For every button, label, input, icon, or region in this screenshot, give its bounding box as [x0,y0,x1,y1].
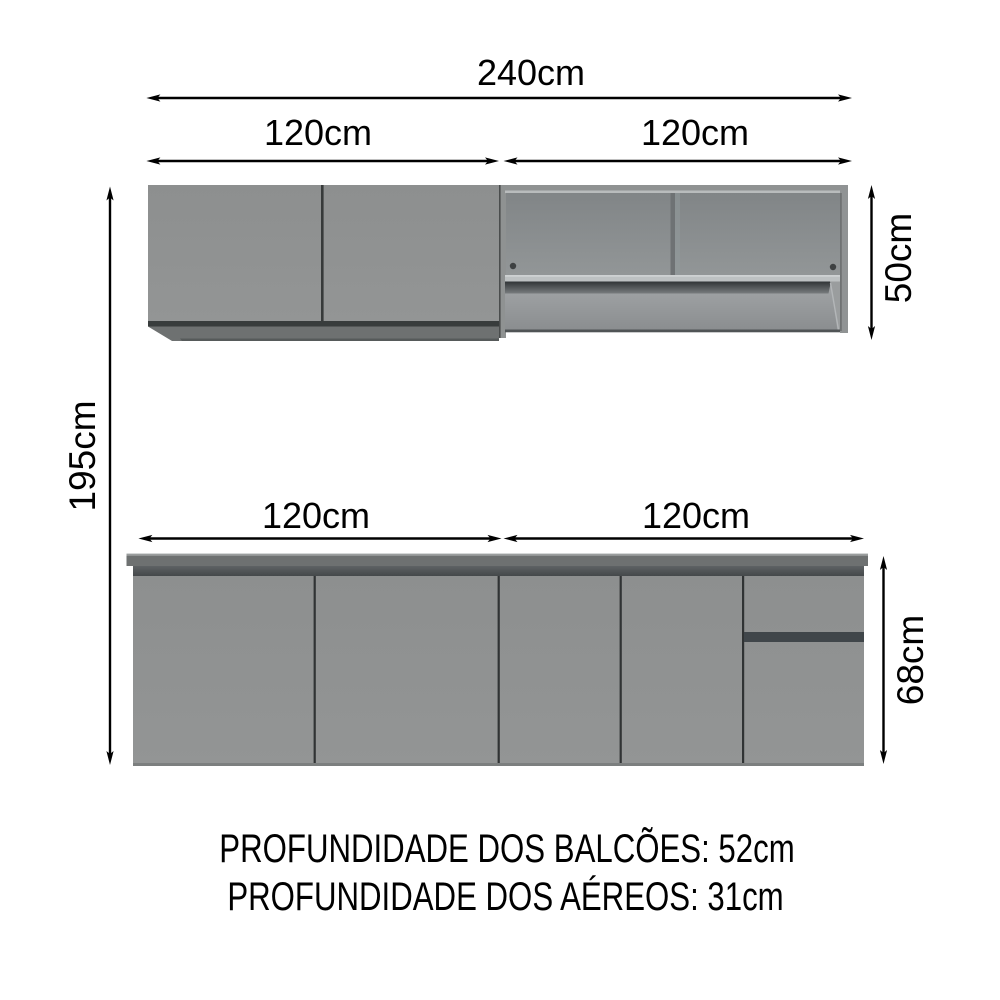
svg-text:120cm: 120cm [264,112,372,153]
svg-text:240cm: 240cm [477,52,585,93]
svg-text:195cm: 195cm [62,400,103,511]
svg-text:PROFUNDIDADE DOS AÉREOS: 31cm: PROFUNDIDADE DOS AÉREOS: 31cm [227,874,783,919]
svg-text:68cm: 68cm [890,615,931,705]
svg-text:PROFUNDIDADE DOS BALCÕES: 52cm: PROFUNDIDADE DOS BALCÕES: 52cm [219,826,794,871]
svg-text:50cm: 50cm [878,213,919,303]
svg-text:120cm: 120cm [642,495,750,536]
svg-text:120cm: 120cm [641,112,749,153]
svg-text:120cm: 120cm [262,495,370,536]
